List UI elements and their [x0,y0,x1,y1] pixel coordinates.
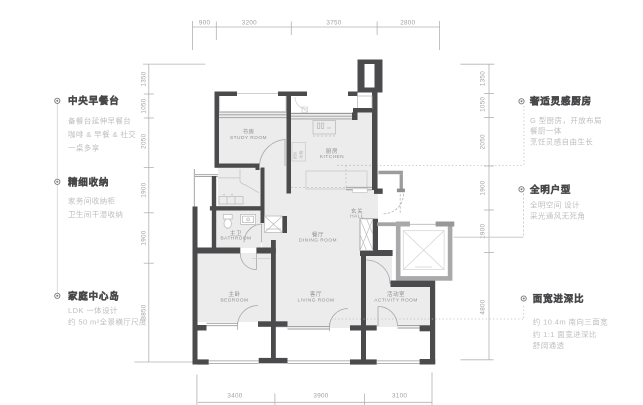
svg-text:2050: 2050 [480,134,487,149]
svg-text:850: 850 [293,151,298,159]
svg-text:全明空间 设计: 全明空间 设计 [530,199,580,209]
svg-text:G 型厨房，开放布局: G 型厨房，开放布局 [530,115,602,125]
svg-text:2050: 2050 [140,133,147,148]
svg-text:1050: 1050 [140,98,147,113]
svg-text:卫生间干湿收纳: 卫生间干湿收纳 [68,209,123,219]
svg-text:书房: 书房 [242,128,254,136]
svg-text:家庭中心岛: 家庭中心岛 [68,291,120,303]
svg-text:1900: 1900 [140,182,147,197]
svg-text:一桌多享: 一桌多享 [68,143,100,153]
svg-text:舒阔通透: 舒阔通透 [533,340,565,350]
svg-text:1350: 1350 [140,71,147,86]
svg-text:2800: 2800 [400,20,415,27]
svg-text:活动室: 活动室 [387,290,405,298]
svg-text:HALL: HALL [350,214,364,220]
svg-text:3100: 3100 [392,392,407,399]
svg-text:3900: 3900 [313,392,328,399]
svg-text:约 1:1 面宽进深比: 约 1:1 面宽进深比 [533,329,597,339]
svg-text:中央早餐台: 中央早餐台 [68,95,120,107]
svg-text:餐厨一体: 餐厨一体 [530,125,562,135]
svg-text:家务间收纳柜: 家务间收纳柜 [68,196,115,206]
svg-text:约 10.4m 南向三面宽: 约 10.4m 南向三面宽 [533,317,608,327]
svg-text:客厅: 客厅 [310,290,322,298]
svg-text:4800: 4800 [480,299,487,314]
svg-text:BATHROOM: BATHROOM [221,235,252,241]
svg-text:冰箱: 冰箱 [298,151,305,159]
svg-text:厨房: 厨房 [326,147,338,155]
svg-text:1900: 1900 [480,224,487,239]
svg-text:ACTIVITY ROOM: ACTIVITY ROOM [374,298,418,304]
svg-text:LDK 一体设计: LDK 一体设计 [68,305,118,315]
svg-text:3750: 3750 [326,20,341,27]
svg-text:备餐台延伸早餐台: 备餐台延伸早餐台 [68,116,131,126]
svg-text:全明户型: 全明户型 [529,184,571,196]
svg-text:1350: 1350 [480,71,487,86]
svg-text:KITCHEN: KITCHEN [320,154,344,160]
svg-text:LIVING ROOM: LIVING ROOM [298,298,335,304]
svg-text:3200: 3200 [242,20,257,27]
svg-text:900: 900 [199,20,211,27]
svg-text:1050: 1050 [480,97,487,112]
svg-text:咖啡 & 早餐 & 社交: 咖啡 & 早餐 & 社交 [68,129,136,139]
svg-text:1900: 1900 [480,180,487,195]
svg-text:采光通风无死角: 采光通风无死角 [530,211,585,221]
svg-text:餐厅: 餐厅 [312,231,324,239]
svg-text:1900: 1900 [140,230,147,245]
svg-text:奢适灵感厨房: 奢适灵感厨房 [529,96,592,108]
svg-text:DINING ROOM: DINING ROOM [299,238,337,244]
svg-text:3400: 3400 [227,392,242,399]
svg-text:约 50 m²全景横厅尺度: 约 50 m²全景横厅尺度 [68,317,147,327]
svg-text:面宽进深比: 面宽进深比 [533,293,585,305]
svg-text:精细收纳: 精细收纳 [68,177,109,189]
svg-text:主卧: 主卧 [228,290,240,298]
svg-text:STUDY ROOM: STUDY ROOM [230,135,267,141]
svg-text:BEDROOM: BEDROOM [221,298,249,304]
svg-text:烹饪灵感自由生长: 烹饪灵感自由生长 [530,136,593,146]
